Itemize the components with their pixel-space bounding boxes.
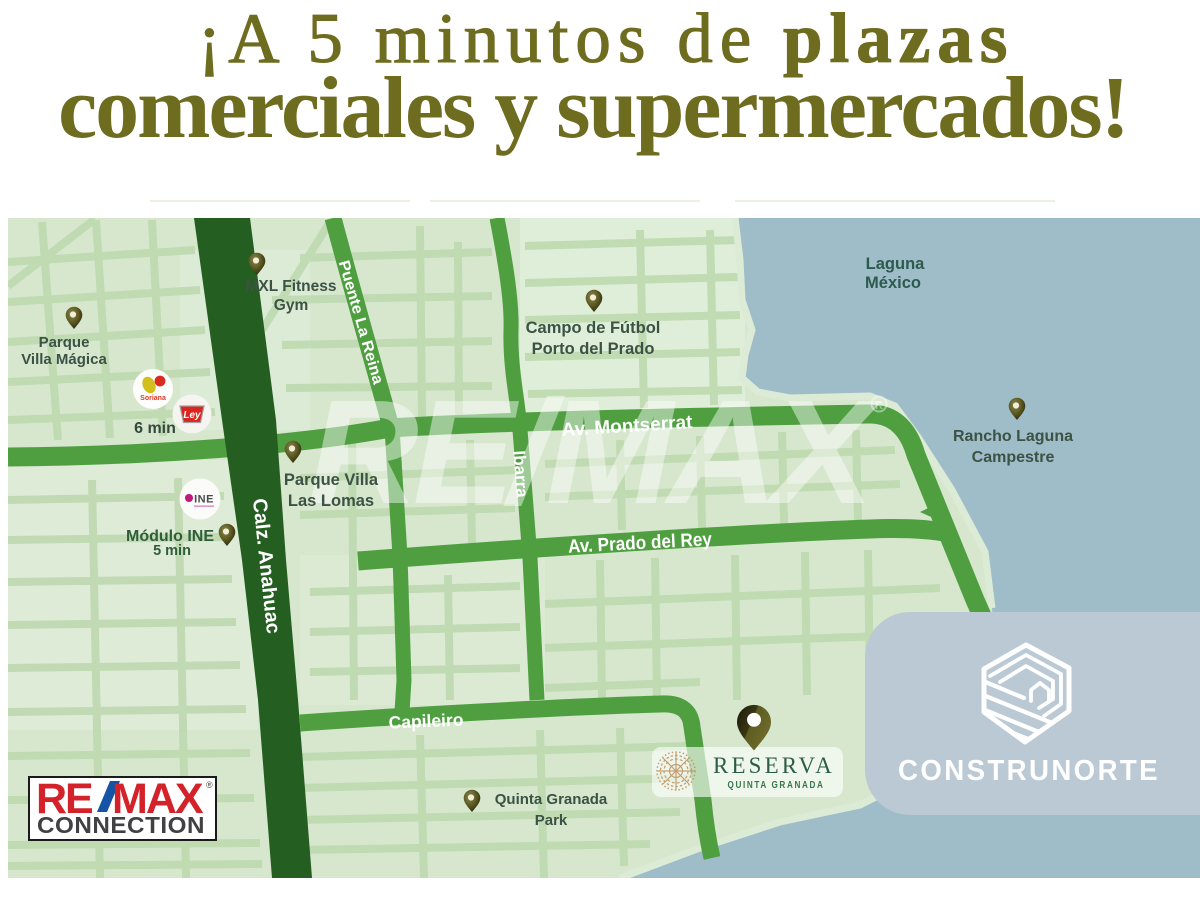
svg-text:MXL Fitness: MXL Fitness — [245, 278, 336, 295]
svg-text:Campestre: Campestre — [972, 449, 1055, 466]
svg-text:Parque: Parque — [39, 334, 90, 351]
svg-text:®: ® — [206, 780, 213, 790]
svg-text:Soriana: Soriana — [140, 395, 166, 402]
svg-text:CONNECTION: CONNECTION — [37, 812, 205, 838]
svg-text:QUINTA GRANADA: QUINTA GRANADA — [728, 780, 825, 791]
svg-text:Gym: Gym — [274, 297, 308, 314]
svg-text:Villa Mágica: Villa Mágica — [21, 351, 107, 368]
svg-text:Quinta Granada: Quinta Granada — [495, 791, 608, 808]
svg-text:Laguna: Laguna — [866, 255, 925, 273]
svg-text:Ibarra: Ibarra — [509, 450, 531, 499]
svg-text:5 min: 5 min — [153, 543, 191, 559]
svg-text:RESERVA: RESERVA — [713, 753, 835, 778]
svg-text:Park: Park — [535, 812, 568, 829]
svg-text:RE/MAX: RE/MAX — [308, 370, 883, 535]
svg-text:Rancho Laguna: Rancho Laguna — [953, 428, 1073, 445]
svg-text:Campo de Fútbol: Campo de Fútbol — [526, 319, 661, 337]
svg-text:México: México — [865, 274, 921, 292]
svg-text:Porto del Prado: Porto del Prado — [532, 340, 655, 358]
svg-text:Las Lomas: Las Lomas — [288, 492, 374, 510]
svg-text:CONSTRUNORTE: CONSTRUNORTE — [898, 755, 1160, 787]
svg-text:R: R — [875, 400, 883, 412]
svg-text:Ley: Ley — [183, 410, 201, 421]
svg-text:Parque Villa: Parque Villa — [284, 471, 379, 489]
svg-text:6 min: 6 min — [134, 420, 176, 437]
svg-text:Capileiro: Capileiro — [388, 709, 464, 732]
svg-text:INE: INE — [194, 494, 214, 506]
